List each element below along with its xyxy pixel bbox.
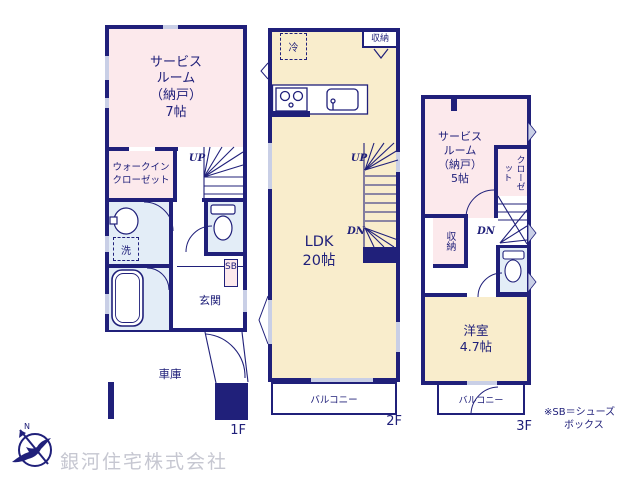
casement-window-marker [259, 296, 268, 344]
stairs-3f [498, 196, 527, 244]
sink-icon-1f [110, 208, 138, 234]
garage-gate [205, 332, 248, 383]
casement-window-marker [528, 122, 536, 292]
company-name-watermark: 銀河住宅株式会社 [60, 447, 228, 474]
stairs-1f [204, 147, 243, 198]
shoebox-note: ※SB＝シューズ ボックス [544, 406, 636, 432]
compass-n-label: N [24, 422, 30, 431]
casement-window-marker [261, 63, 268, 79]
toilet-icon-1f [211, 205, 235, 240]
company-logo: N [8, 420, 62, 476]
door-arc [466, 190, 502, 414]
bird-icon [12, 438, 51, 462]
kitchen-counter-icon [273, 85, 368, 114]
door-arc [144, 202, 212, 290]
stairs-2f [364, 143, 398, 247]
bathtub-icon-1f [112, 270, 143, 326]
kitchen-front-wall [272, 111, 310, 117]
floor-plan-canvas: サービス ルーム （納戸） 7帖 ウォークイン クローゼット 洗 SB 玄関 車… [0, 0, 640, 480]
door-fold-marker [374, 49, 388, 58]
toilet-icon-3f [503, 251, 524, 282]
